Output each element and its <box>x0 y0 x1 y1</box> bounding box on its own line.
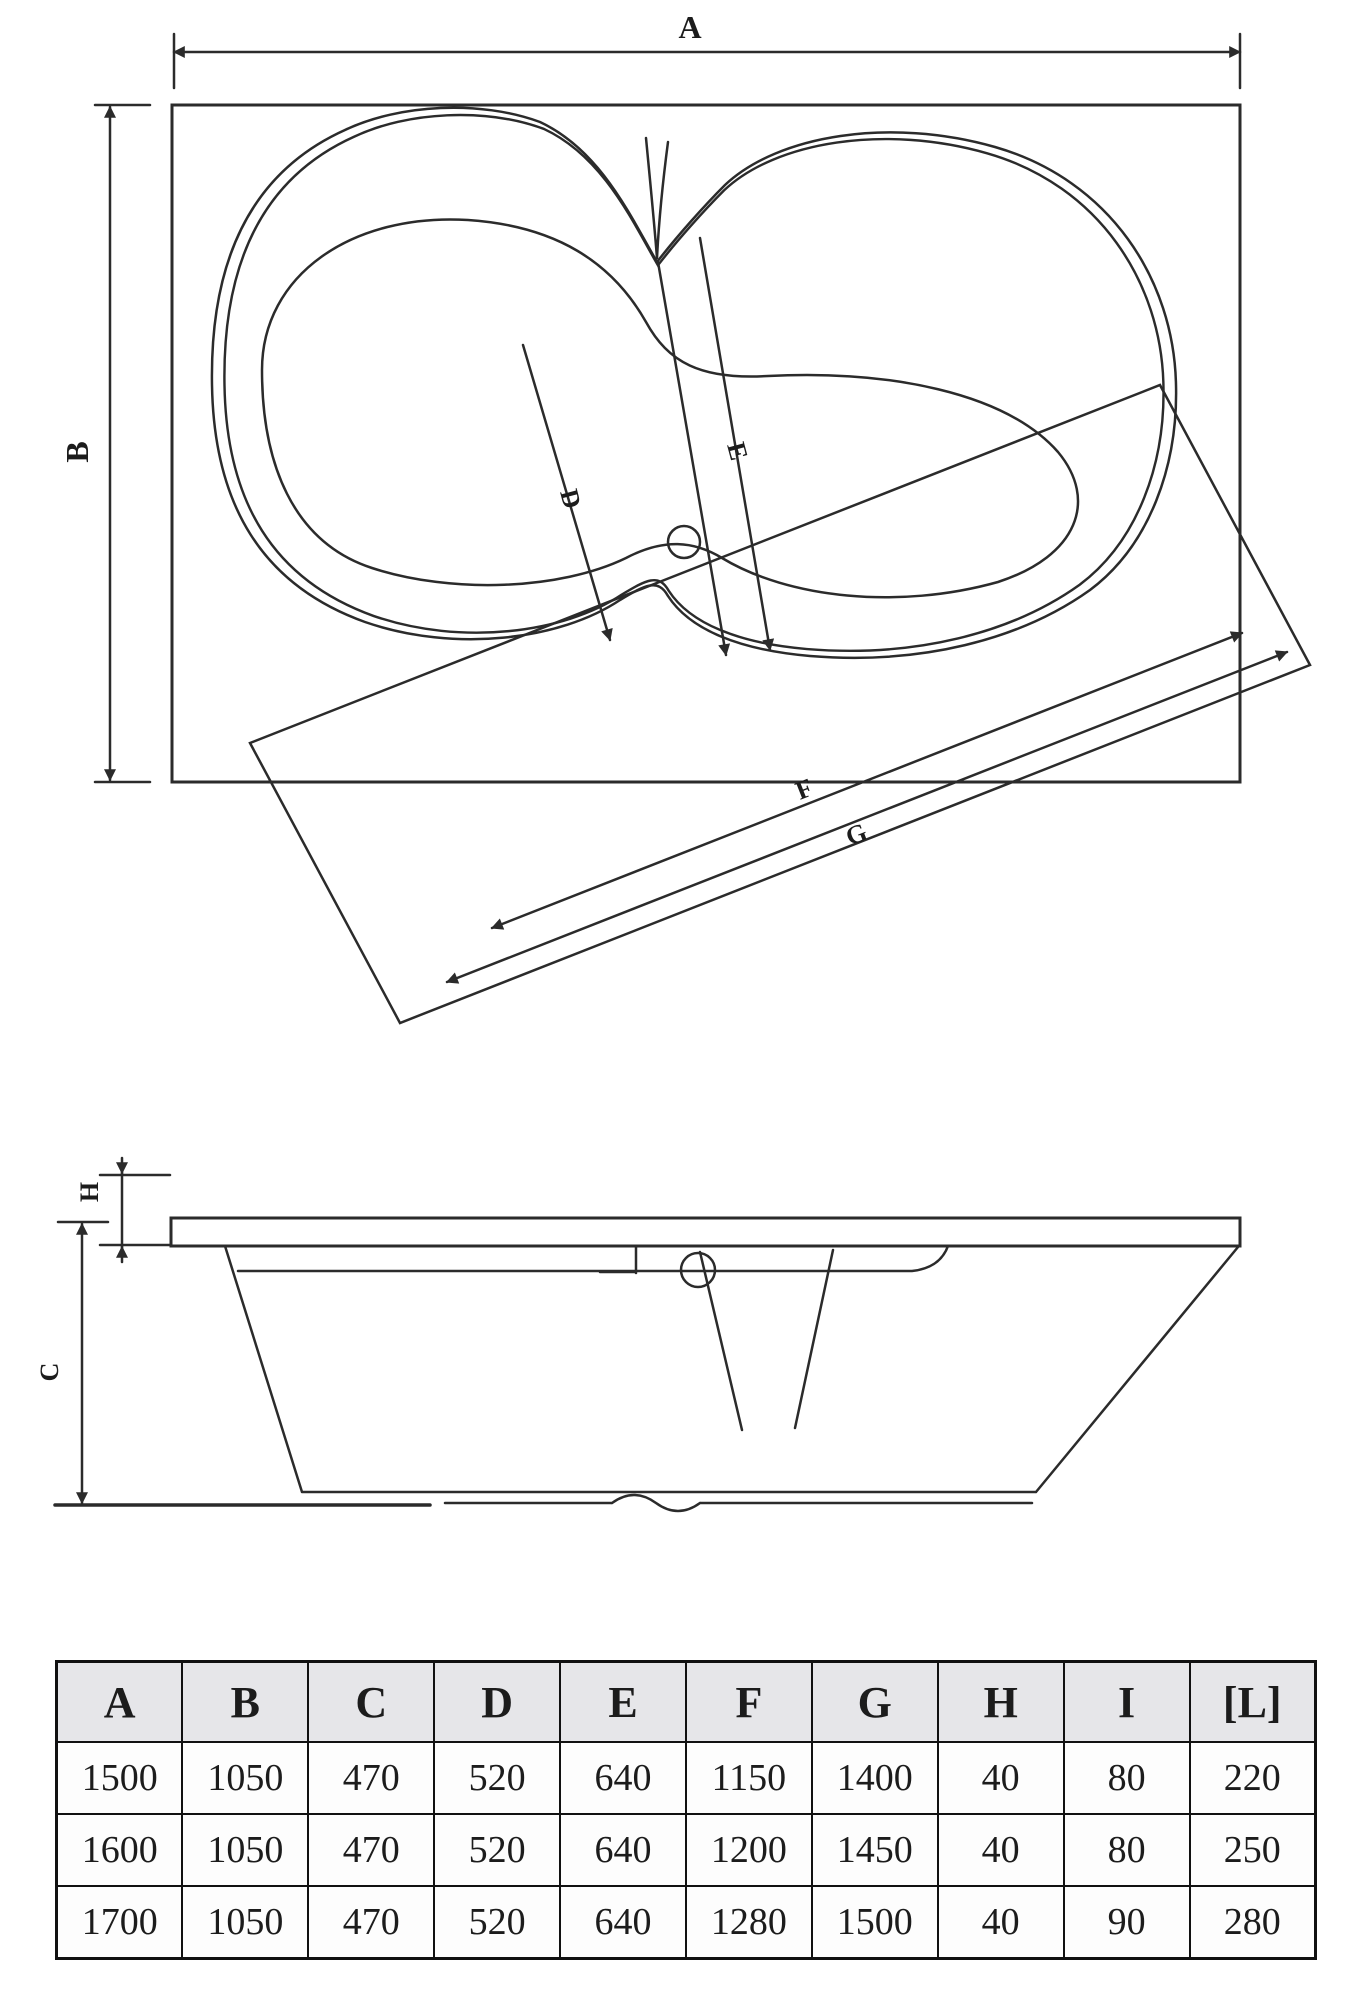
basin-outline <box>262 219 1078 597</box>
tub-body-profile <box>225 1246 1238 1492</box>
spec-value: 40 <box>938 1742 1064 1814</box>
spec-value: 640 <box>560 1742 686 1814</box>
plan-view: A B E D F <box>59 9 1310 1023</box>
spec-col-header: G <box>812 1662 938 1743</box>
spec-value: 280 <box>1190 1886 1316 1959</box>
spec-value: 80 <box>1064 1814 1190 1886</box>
spec-value: 1400 <box>812 1742 938 1814</box>
tub-outer-rim <box>212 108 1176 658</box>
spec-value: 1700 <box>57 1886 183 1959</box>
spec-table: A B C D E F G H I [L] 1500 1050 470 520 … <box>55 1660 1317 1960</box>
spec-table-row: 1600 1050 470 520 640 1200 1450 40 80 25… <box>57 1814 1316 1886</box>
dim-a-label: A <box>678 9 701 45</box>
dim-c-label: C <box>35 1363 64 1382</box>
dim-g-line <box>447 652 1287 982</box>
spec-value: 1050 <box>182 1886 308 1959</box>
spec-col-header: [L] <box>1190 1662 1316 1743</box>
drain-circle-plan <box>668 526 700 558</box>
spec-value: 640 <box>560 1814 686 1886</box>
spec-value: 90 <box>1064 1886 1190 1959</box>
spec-value: 1280 <box>686 1886 812 1959</box>
spec-value: 1050 <box>182 1814 308 1886</box>
spec-col-header: H <box>938 1662 1064 1743</box>
technical-drawing-page: A B E D F <box>0 0 1355 2000</box>
spec-value: 1150 <box>686 1742 812 1814</box>
spec-value: 1200 <box>686 1814 812 1886</box>
rim-side-profile <box>171 1218 1240 1246</box>
dim-f-label: F <box>792 773 817 806</box>
spec-value: 250 <box>1190 1814 1316 1886</box>
spec-col-header: A <box>57 1662 183 1743</box>
spec-col-header: E <box>560 1662 686 1743</box>
bathtub-technical-drawing: A B E D F <box>0 0 1355 1630</box>
spec-value: 1050 <box>182 1742 308 1814</box>
spec-value: 640 <box>560 1886 686 1959</box>
spec-value: 520 <box>434 1742 560 1814</box>
spec-value: 40 <box>938 1814 1064 1886</box>
overflow-pipe-lines <box>700 1250 833 1430</box>
spec-value: 520 <box>434 1886 560 1959</box>
dim-d-label: D <box>554 486 587 512</box>
spec-table-row: 1500 1050 470 520 640 1150 1400 40 80 22… <box>57 1742 1316 1814</box>
dim-b-label: B <box>59 441 95 462</box>
spec-col-header: C <box>308 1662 434 1743</box>
basin-ledge-line <box>238 1246 948 1271</box>
dim-h-label: H <box>75 1182 104 1202</box>
spec-value: 470 <box>308 1886 434 1959</box>
dim-e-label: E <box>721 439 754 463</box>
tub-inner-rim <box>224 115 1163 651</box>
headrest-notch <box>646 138 668 258</box>
spec-value: 40 <box>938 1886 1064 1959</box>
spec-value: 1450 <box>812 1814 938 1886</box>
spec-value: 470 <box>308 1814 434 1886</box>
spec-value: 520 <box>434 1814 560 1886</box>
spec-value: 80 <box>1064 1742 1190 1814</box>
spec-col-header: B <box>182 1662 308 1743</box>
base-plinth-and-feet <box>445 1495 1032 1511</box>
dim-i-bracket <box>600 1246 636 1273</box>
spec-value: 470 <box>308 1742 434 1814</box>
spec-table-row: 1700 1050 470 520 640 1280 1500 40 90 28… <box>57 1886 1316 1959</box>
spec-col-header: D <box>434 1662 560 1743</box>
plan-bounding-rectangle <box>172 105 1240 782</box>
spec-table-header-row: A B C D E F G H I [L] <box>57 1662 1316 1743</box>
spec-col-header: F <box>686 1662 812 1743</box>
spec-value: 1500 <box>57 1742 183 1814</box>
spec-value: 1500 <box>812 1886 938 1959</box>
spec-value: 220 <box>1190 1742 1316 1814</box>
spec-value: 1600 <box>57 1814 183 1886</box>
side-view: H C <box>35 1158 1240 1511</box>
spec-col-header: I <box>1064 1662 1190 1743</box>
